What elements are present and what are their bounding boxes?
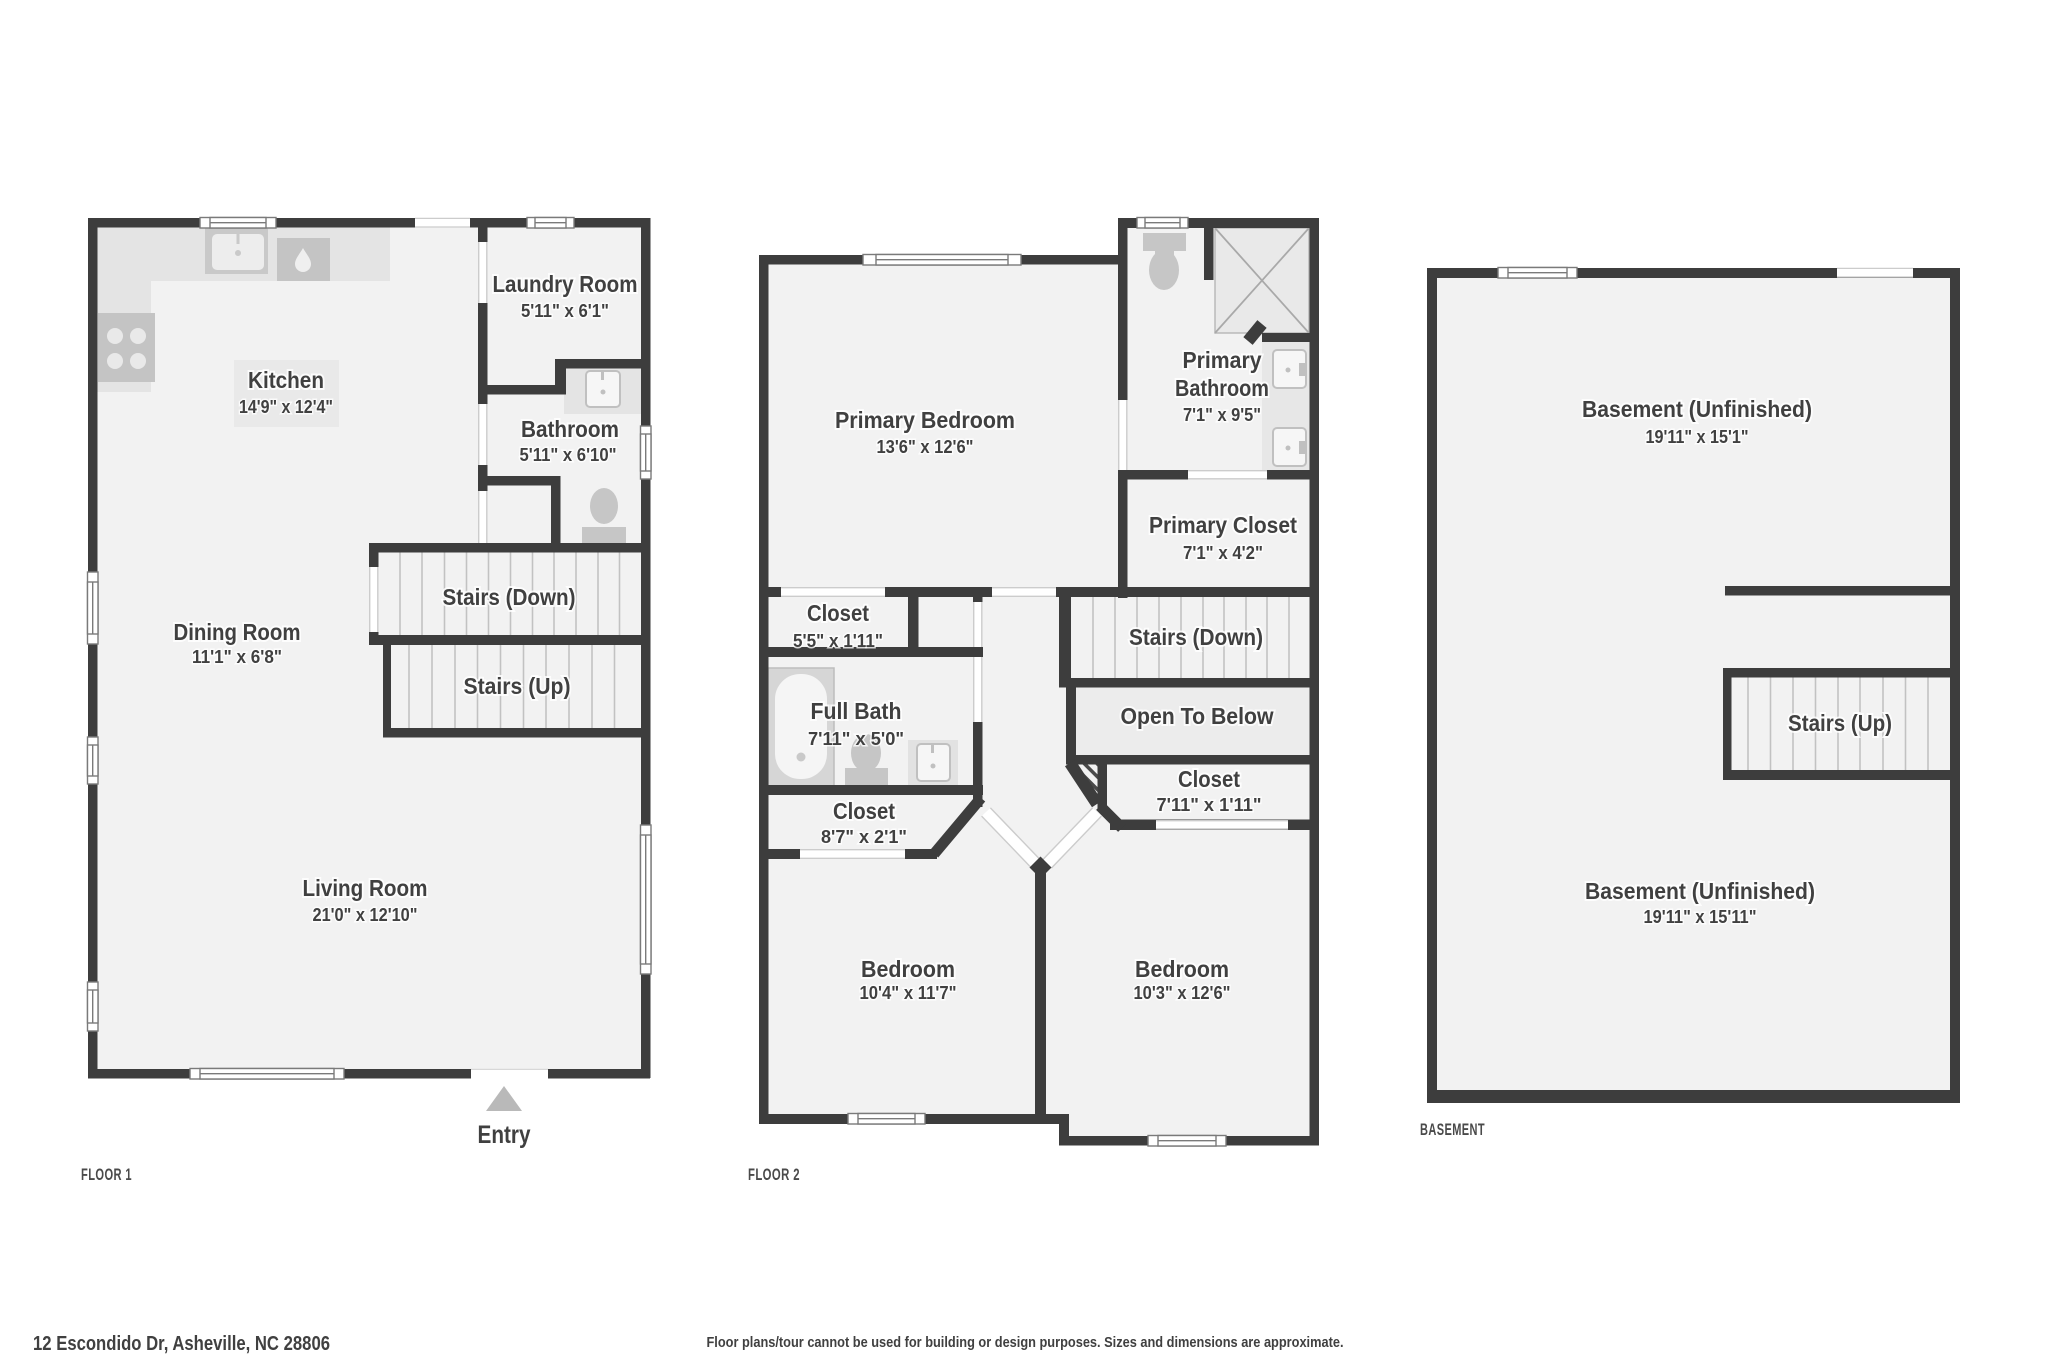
svg-text:Bathroom: Bathroom — [521, 416, 619, 442]
svg-text:Bedroom: Bedroom — [861, 956, 955, 982]
svg-text:14'9" x 12'4": 14'9" x 12'4" — [239, 396, 333, 417]
svg-text:Entry: Entry — [478, 1121, 531, 1149]
svg-text:Laundry Room: Laundry Room — [493, 271, 638, 297]
svg-text:19'11" x 15'11": 19'11" x 15'11" — [1644, 906, 1757, 927]
svg-text:7'11" x 1'11": 7'11" x 1'11" — [1157, 794, 1262, 815]
svg-text:7'1" x 9'5": 7'1" x 9'5" — [1183, 404, 1261, 425]
svg-text:Dining Room: Dining Room — [174, 619, 301, 645]
svg-text:Stairs (Up): Stairs (Up) — [464, 673, 571, 699]
svg-text:BASEMENT: BASEMENT — [1420, 1121, 1485, 1139]
svg-text:Kitchen: Kitchen — [248, 367, 324, 393]
svg-text:5'5" x 1'11": 5'5" x 1'11" — [793, 630, 883, 651]
svg-text:Closet: Closet — [833, 798, 895, 824]
svg-text:10'3" x 12'6": 10'3" x 12'6" — [1134, 982, 1231, 1003]
svg-text:Stairs (Up): Stairs (Up) — [1788, 710, 1892, 736]
svg-text:Primary Closet: Primary Closet — [1149, 512, 1297, 538]
svg-text:Primary: Primary — [1183, 347, 1262, 373]
svg-text:21'0" x 12'10": 21'0" x 12'10" — [313, 904, 418, 925]
svg-text:8'7" x 2'1": 8'7" x 2'1" — [821, 826, 907, 847]
svg-text:12 Escondido Dr, Asheville, NC: 12 Escondido Dr, Asheville, NC 28806 — [33, 1333, 330, 1355]
svg-text:FLOOR 1: FLOOR 1 — [81, 1166, 132, 1184]
svg-text:Open To Below: Open To Below — [1121, 703, 1274, 729]
svg-text:Primary Bedroom: Primary Bedroom — [835, 407, 1015, 433]
svg-text:Living Room: Living Room — [303, 875, 428, 901]
svg-text:7'11" x 5'0": 7'11" x 5'0" — [808, 728, 904, 749]
svg-text:Stairs (Down): Stairs (Down) — [443, 584, 576, 610]
svg-text:Closet: Closet — [807, 600, 869, 626]
svg-text:13'6" x 12'6": 13'6" x 12'6" — [877, 436, 974, 457]
svg-text:Closet: Closet — [1178, 766, 1240, 792]
svg-text:Floor plans/tour cannot be use: Floor plans/tour cannot be used for buil… — [707, 1335, 1344, 1351]
svg-text:Stairs (Down): Stairs (Down) — [1129, 624, 1263, 650]
svg-text:5'11" x 6'10": 5'11" x 6'10" — [520, 444, 617, 465]
svg-text:Basement (Unfinished): Basement (Unfinished) — [1582, 396, 1812, 422]
svg-text:7'1" x 4'2": 7'1" x 4'2" — [1183, 542, 1263, 563]
svg-text:Full Bath: Full Bath — [811, 698, 902, 724]
svg-text:10'4" x 11'7": 10'4" x 11'7" — [860, 982, 957, 1003]
svg-text:19'11" x 15'1": 19'11" x 15'1" — [1646, 426, 1749, 447]
svg-text:Bedroom: Bedroom — [1135, 956, 1229, 982]
svg-text:Bathroom: Bathroom — [1175, 375, 1269, 401]
svg-text:Basement (Unfinished): Basement (Unfinished) — [1585, 878, 1815, 904]
svg-text:11'1" x 6'8": 11'1" x 6'8" — [192, 646, 282, 667]
svg-text:5'11" x 6'1": 5'11" x 6'1" — [521, 300, 609, 321]
svg-text:FLOOR 2: FLOOR 2 — [748, 1166, 800, 1184]
